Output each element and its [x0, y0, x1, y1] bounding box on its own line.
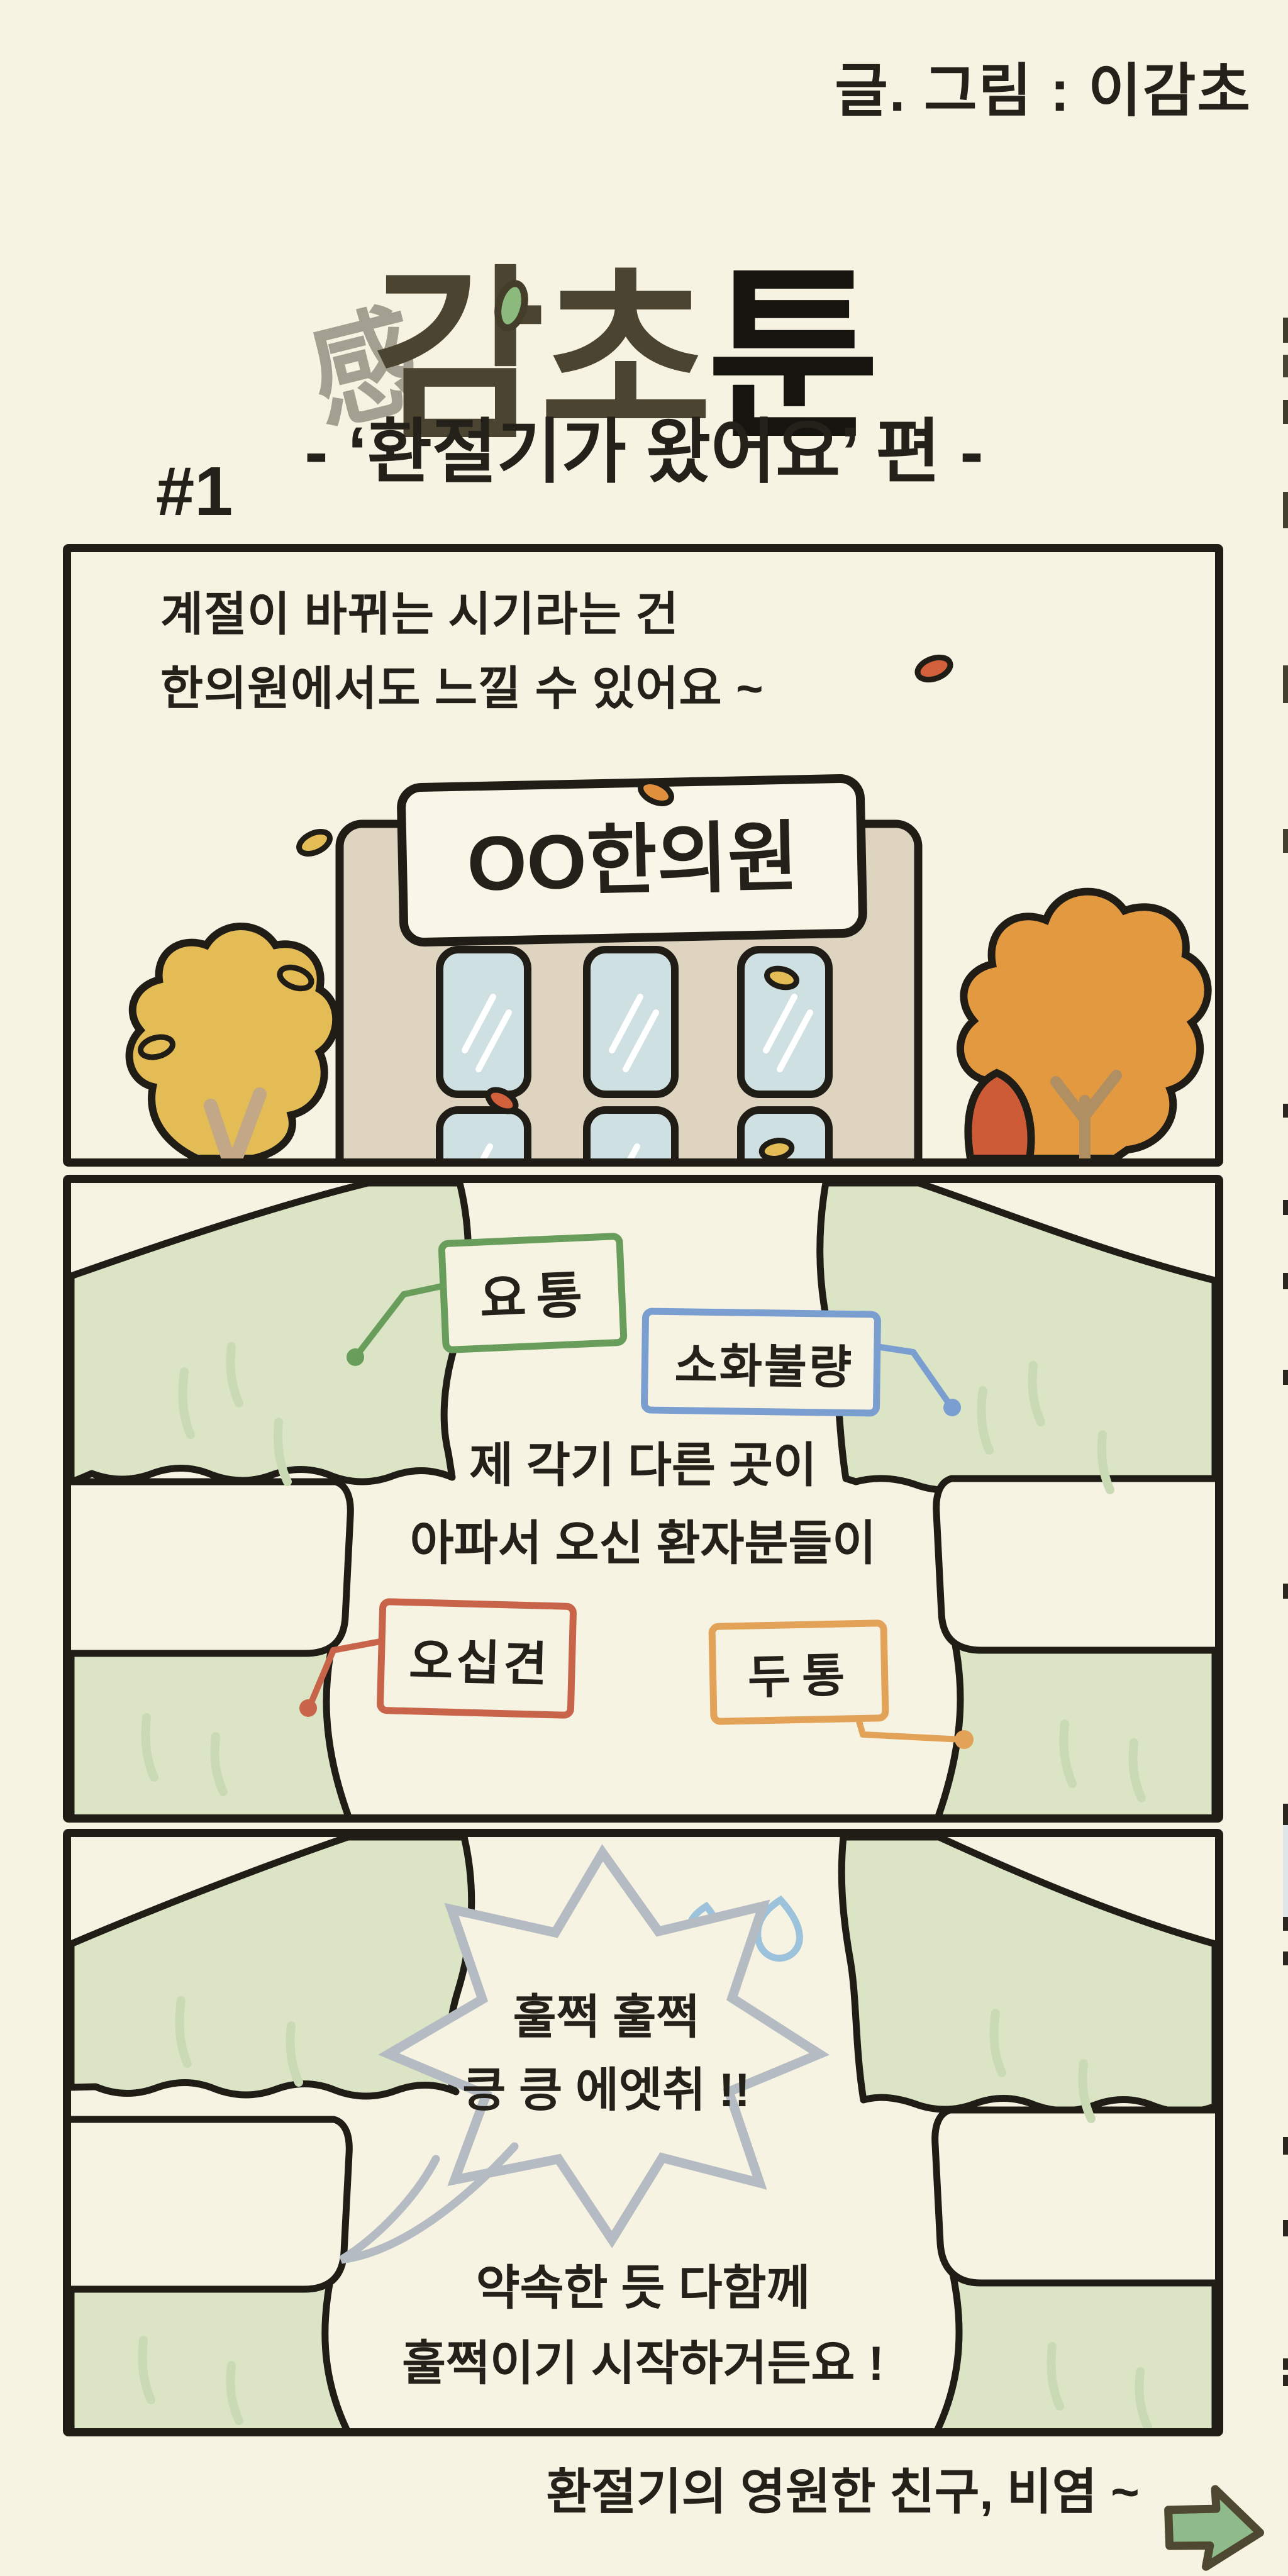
- footer-caption: 환절기의 영원한 친구, 비염 ~: [484, 2453, 1201, 2523]
- edge-artifact: [1283, 1804, 1288, 1825]
- symptom-label-text: 오십견: [402, 1622, 552, 1695]
- symptom-label-text: 소화불량: [668, 1327, 854, 1397]
- edge-artifact: [1283, 492, 1288, 528]
- panel3-caption-line1: 약속한 듯 다함께: [71, 2249, 1215, 2318]
- webtoon-page: 글. 그림 : 이감초 感 감초툰 - ‘환절기가 왔어요’ 편 - #1: [0, 0, 1288, 2576]
- arrow-right-icon: [1155, 2475, 1274, 2576]
- panel1-caption-line1: 계절이 바뀌는 시기라는 건: [160, 577, 763, 652]
- edge-artifact: [1283, 1825, 1288, 1918]
- symptom-label-text: 요통: [472, 1254, 594, 1332]
- title-block: 感 감초툰: [0, 133, 1288, 385]
- edge-artifact: [1283, 2375, 1288, 2386]
- edge-artifact: [1283, 1273, 1288, 1289]
- bubble-text-line1: 훌쩍 훌쩍: [267, 1979, 946, 2047]
- panel2-caption-line1: 제 각기 다른 곳이: [71, 1426, 1215, 1496]
- bubble-text-line2: 킁 킁 에엣취 !!: [267, 2051, 946, 2120]
- edge-artifact: [1283, 1370, 1288, 1385]
- edge-artifact: [1283, 1951, 1288, 1965]
- panel-2: [63, 1175, 1223, 1823]
- symptom-label-backpain: 요통: [438, 1233, 628, 1354]
- panel1-caption: 계절이 바뀌는 시기라는 건 한의원에서도 느낄 수 있어요 ~: [160, 577, 763, 726]
- curtain-bottom-left: [71, 1636, 349, 1814]
- symptom-label-headache: 두통: [708, 1619, 889, 1725]
- symptom-label-text: 두통: [741, 1638, 857, 1707]
- edge-artifact: [1283, 1917, 1288, 1931]
- edge-artifact: [1283, 1584, 1288, 1599]
- symptom-label-indigestion: 소화불량: [641, 1307, 881, 1416]
- symptom-label-frozen-shoulder: 오십견: [377, 1598, 577, 1719]
- author-credit: 글. 그림 : 이감초: [835, 44, 1252, 128]
- panel3-caption-line2: 훌쩍이기 시작하거든요 !: [71, 2324, 1215, 2394]
- edge-artifact: [1283, 2137, 1288, 2155]
- edge-artifact: [1283, 665, 1288, 703]
- edge-artifact: [1283, 2358, 1288, 2370]
- edge-artifact: [1283, 829, 1288, 853]
- edge-artifact: [1283, 1104, 1288, 1118]
- orange-tree: [960, 892, 1208, 1158]
- curtain-bottom-right: [938, 1633, 1215, 1814]
- svg-text:OO한의원: OO한의원: [466, 814, 799, 906]
- clinic-sign: OO한의원: [401, 778, 863, 942]
- clinic-beds-scene: [71, 1183, 1215, 1814]
- leaf-icon: [489, 274, 533, 337]
- panel1-caption-line2: 한의원에서도 느낄 수 있어요 ~: [160, 652, 763, 726]
- panel2-caption-line2: 아파서 오신 환자분들이: [71, 1504, 1215, 1574]
- episode-number: #1: [156, 452, 233, 531]
- edge-artifact: [1283, 1200, 1288, 1215]
- edge-artifact: [1283, 2220, 1288, 2236]
